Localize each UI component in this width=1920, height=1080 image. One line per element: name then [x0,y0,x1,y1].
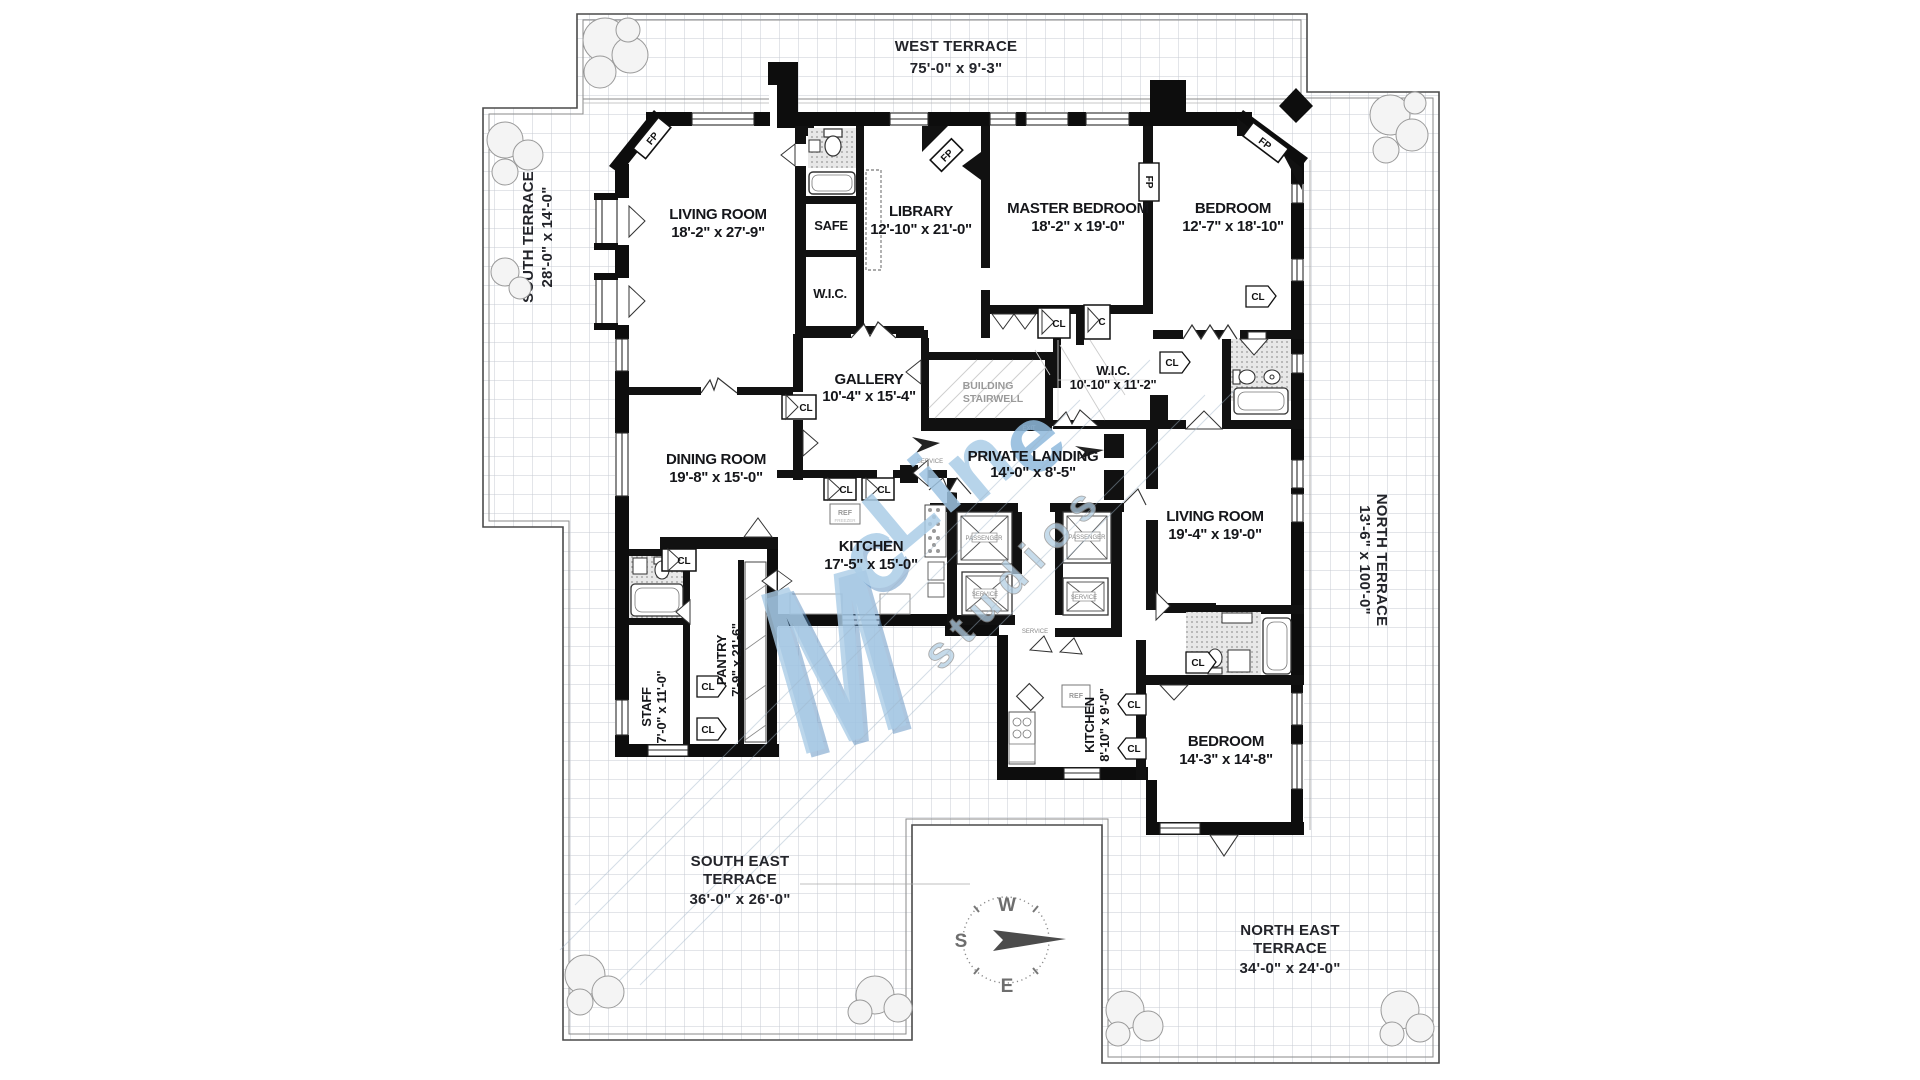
svg-text:CL: CL [677,556,690,567]
svg-text:C: C [1098,317,1105,328]
svg-text:CL: CL [1251,292,1264,303]
svg-text:BEDROOM: BEDROOM [1195,200,1271,217]
svg-text:W.I.C.: W.I.C. [813,286,847,301]
svg-text:LIVING ROOM: LIVING ROOM [669,206,767,223]
svg-text:TERRACE: TERRACE [703,871,777,888]
svg-text:18'-2" x 19'-0": 18'-2" x 19'-0" [1031,218,1125,235]
svg-text:12'-10" x 21'-0": 12'-10" x 21'-0" [870,221,972,238]
svg-text:BEDROOM: BEDROOM [1188,733,1264,750]
svg-text:14'-3" x 14'-8": 14'-3" x 14'-8" [1179,751,1273,768]
svg-text:LIVING ROOM: LIVING ROOM [1166,508,1264,525]
svg-text:TERRACE: TERRACE [1253,940,1327,957]
svg-text:CL: CL [1052,319,1065,330]
svg-text:SAFE: SAFE [814,218,848,233]
svg-text:KITCHEN: KITCHEN [839,538,904,555]
svg-text:PANTRY: PANTRY [714,634,729,685]
svg-text:CL: CL [1127,744,1140,755]
svg-text:SERVICE: SERVICE [1022,629,1048,635]
svg-text:75'-0" x 9'-3": 75'-0" x 9'-3" [910,60,1003,77]
svg-text:36'-0" x 26'-0": 36'-0" x 26'-0" [689,891,790,908]
svg-text:MASTER BEDROOM: MASTER BEDROOM [1007,200,1149,217]
svg-text:DINING ROOM: DINING ROOM [666,451,766,468]
svg-text:LIBRARY: LIBRARY [889,203,953,220]
svg-text:18'-2" x 27'-9": 18'-2" x 27'-9" [671,224,765,241]
svg-text:W.I.C.: W.I.C. [1096,363,1130,378]
svg-text:CL: CL [701,682,714,693]
svg-text:SERVICE: SERVICE [1071,595,1097,601]
svg-text:10'-10" x 11'-2": 10'-10" x 11'-2" [1070,377,1157,392]
svg-text:19'-8" x 15'-0": 19'-8" x 15'-0" [669,469,763,486]
svg-text:CL: CL [1165,358,1178,369]
svg-text:12'-7" x 18'-10": 12'-7" x 18'-10" [1182,218,1284,235]
svg-text:E: E [1001,976,1014,997]
svg-text:BUILDING: BUILDING [963,380,1014,392]
svg-text:34'-0" x 24'-0": 34'-0" x 24'-0" [1239,960,1340,977]
svg-text:7'-9" x 21'-6": 7'-9" x 21'-6" [729,623,744,697]
svg-text:28'-0" x 14'-0": 28'-0" x 14'-0" [539,186,556,287]
svg-text:10'-4" x 15'-4": 10'-4" x 15'-4" [822,388,916,405]
svg-text:GALLERY: GALLERY [834,371,903,388]
svg-text:NORTH EAST: NORTH EAST [1240,922,1340,939]
svg-text:CL: CL [1191,658,1204,669]
svg-text:STAFF: STAFF [639,687,654,727]
svg-text:FP: FP [1143,176,1154,189]
svg-text:W: W [998,895,1016,916]
svg-text:17'-5" x 15'-0": 17'-5" x 15'-0" [824,556,918,573]
svg-text:S: S [955,931,968,952]
svg-text:19'-4" x 19'-0": 19'-4" x 19'-0" [1168,526,1262,543]
svg-text:WEST TERRACE: WEST TERRACE [895,38,1017,55]
svg-text:7'-0" x 11'-0": 7'-0" x 11'-0" [654,670,669,743]
svg-text:8'-10" x 9'-0": 8'-10" x 9'-0" [1097,688,1112,762]
svg-text:SOUTH EAST: SOUTH EAST [691,853,790,870]
svg-text:14'-0" x 8'-5": 14'-0" x 8'-5" [990,464,1076,481]
svg-text:NORTH TERRACE: NORTH TERRACE [1373,494,1390,627]
svg-text:CL: CL [1127,700,1140,711]
svg-text:CL: CL [701,725,714,736]
svg-text:13'-6" x 100'-0": 13'-6" x 100'-0" [1356,505,1373,615]
svg-text:CL: CL [799,403,812,414]
svg-text:KITCHEN: KITCHEN [1082,697,1097,753]
svg-text:PRIVATE LANDING: PRIVATE LANDING [968,448,1099,465]
